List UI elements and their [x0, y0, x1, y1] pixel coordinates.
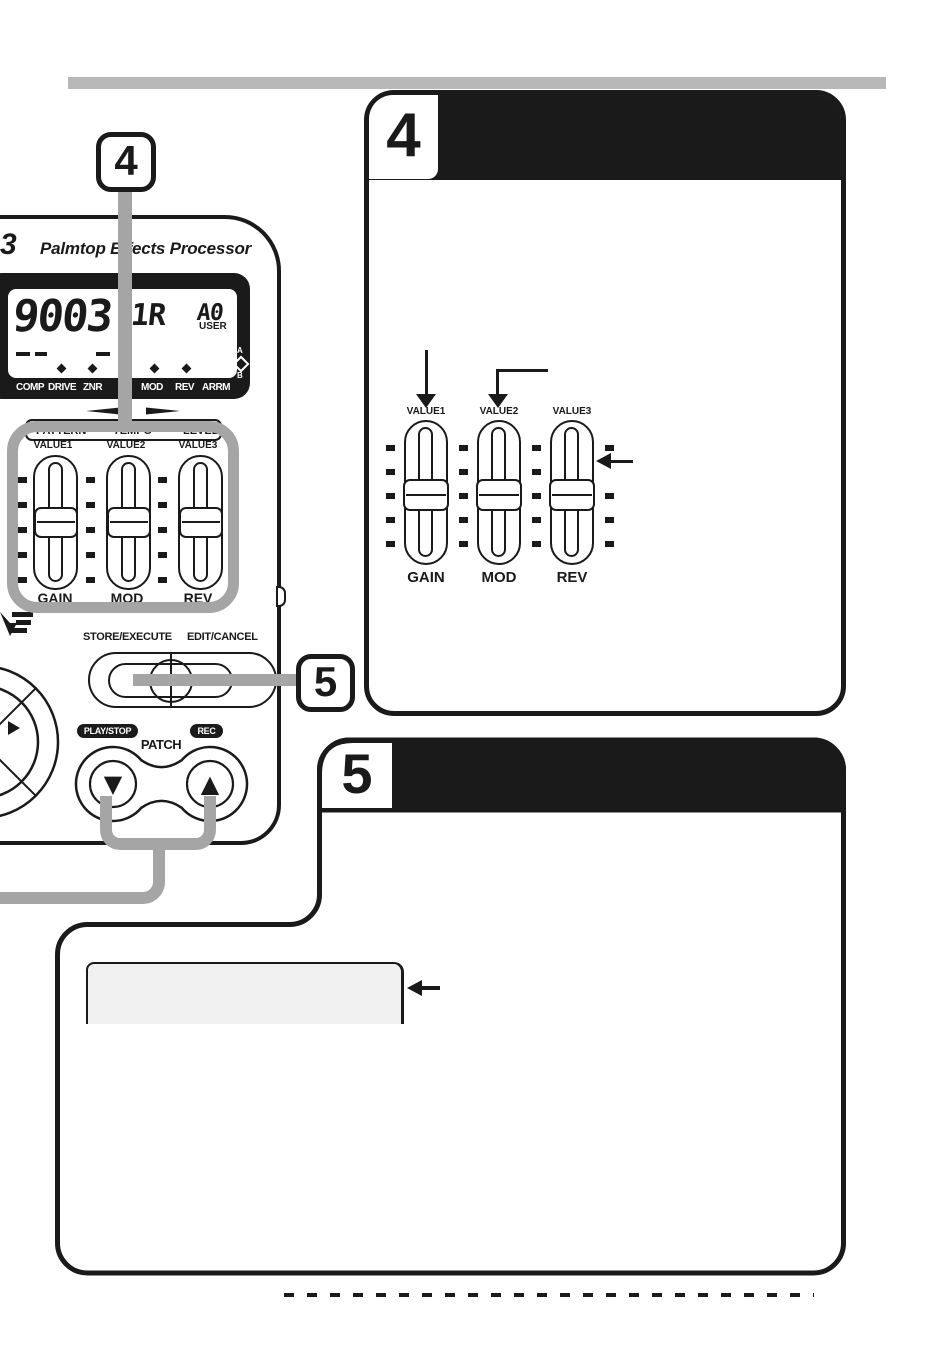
patch-down-button: ▼ [95, 770, 131, 798]
mod-slider-handle [476, 479, 522, 511]
step4-panel-step-tile: 4 [369, 95, 438, 179]
zoom-logo-fragment [0, 612, 34, 636]
value1-label: VALUE1 [391, 406, 461, 417]
indicator-znr: ZNR [83, 382, 102, 393]
device-logo-fragment: 3 [0, 228, 17, 262]
step4-panel-box [364, 90, 846, 716]
patch-pointer-elbow-line [0, 844, 165, 904]
step5-panel-header [320, 740, 844, 810]
left-right-arrows-icon [86, 405, 180, 417]
patch-up-button: ▲ [192, 770, 228, 798]
slider-dots [386, 445, 395, 547]
arrow-left-line [609, 460, 633, 463]
slider-section-highlight [7, 421, 239, 613]
top-rule [68, 77, 886, 89]
value3-label: VALUE3 [537, 406, 607, 417]
mod-label: MOD [459, 569, 539, 586]
dashed-separator [284, 1293, 814, 1297]
indicator-rev: REV [175, 382, 194, 393]
slider-dots [532, 445, 541, 547]
indicator-drive: DRIVE [48, 382, 76, 393]
lcd-patch-digits: 9003 [10, 291, 113, 342]
indicator-mod: MOD [141, 382, 163, 393]
indicator-arrm: ARRM [202, 382, 230, 393]
value2-label: VALUE2 [464, 406, 534, 417]
callout4-pointer-line [118, 187, 132, 430]
lcd-patch-chars: 1r [129, 298, 167, 333]
step4-panel-header [369, 95, 841, 180]
rev-slider-handle [549, 479, 595, 511]
store-execute-label: STORE/EXECUTE [83, 631, 172, 643]
slider-dots [605, 493, 614, 547]
gain-label: GAIN [386, 569, 466, 586]
rev-label: REV [532, 569, 612, 586]
ab-selector-a: A [237, 346, 243, 355]
play-stop-badge: PLAY/STOP [77, 724, 138, 738]
indicator-comp: COMP [16, 382, 44, 393]
jog-dial-right-arrow-icon [8, 721, 20, 735]
callout5-pointer-line [133, 674, 297, 686]
ab-selector-b: B [237, 371, 243, 380]
step5-panel-step-number: 5 [322, 744, 392, 804]
display-screen-area [86, 962, 404, 1024]
arrow-elbow-vline [496, 369, 499, 395]
step4-callout: 4 [96, 132, 156, 192]
arrow-elbow-hline [496, 369, 548, 372]
rec-badge: REC [190, 724, 223, 738]
arrow-down-line [425, 350, 428, 395]
patch-pointer-u-line [100, 796, 216, 850]
step5-callout: 5 [296, 654, 355, 712]
lcd-bank-mode: USER [199, 321, 227, 332]
slider-dots [605, 445, 614, 451]
slider-dots [459, 445, 468, 547]
device-tagline: Palmtop Effects Processor [40, 239, 251, 259]
edit-cancel-label: EDIT/CANCEL [187, 631, 258, 643]
lcd-dash [35, 352, 47, 356]
gain-slider-handle [403, 479, 449, 511]
manual-page: 4 VALUE1 VALUE2 VALUE3 GAIN MOD REV 5 [0, 0, 950, 1352]
lcd-dash [16, 352, 30, 356]
side-switch [276, 586, 286, 607]
jog-dial-fragment [0, 652, 80, 832]
lcd-dash [96, 352, 110, 356]
arrow-left-line [420, 986, 440, 990]
